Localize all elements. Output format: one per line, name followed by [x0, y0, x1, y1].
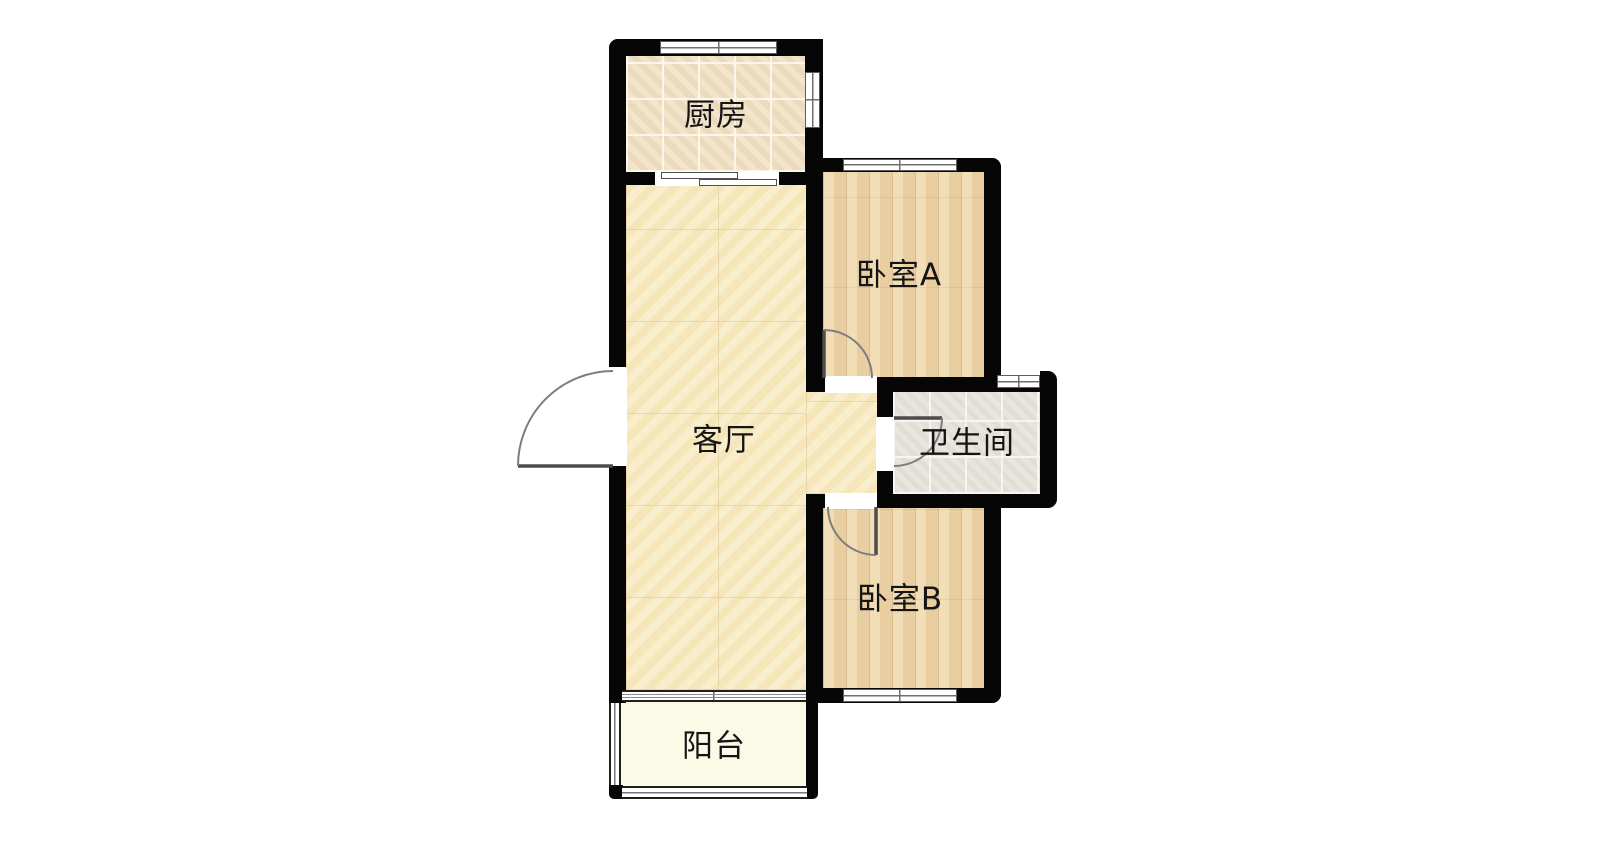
- room-label-bedroom-a: 卧室A: [856, 250, 942, 295]
- room-label-balcony: 阳台: [682, 721, 746, 766]
- entrance-door-arc: [518, 371, 613, 466]
- opening-bedroom-b-door: [825, 493, 877, 509]
- wall-living-bedroom-b: [806, 494, 823, 703]
- room-label-kitchen: 厨房: [684, 90, 748, 135]
- wall-bedroom-b-right: [984, 508, 1001, 703]
- room-label-bathroom: 卫生间: [919, 418, 1015, 463]
- wall-living-bedroom-a: [806, 158, 823, 392]
- floorplan-canvas: 厨房 卧室A 客厅 卫生间 卧室B 阳台: [0, 0, 1600, 842]
- wall-bathroom-right: [1040, 371, 1057, 508]
- window-bedroom-a: [843, 159, 957, 171]
- opening-bedroom-a-door: [825, 376, 877, 393]
- wall-bedroom-a-right: [984, 158, 1001, 392]
- window-balcony-bottom: [622, 786, 807, 799]
- window-bedroom-b: [843, 689, 957, 702]
- window-balcony-left: [609, 703, 621, 785]
- room-label-bedroom-b: 卧室B: [857, 574, 943, 619]
- wall-living-balcony-corner: [609, 688, 623, 703]
- room-label-living: 客厅: [692, 415, 756, 460]
- sliding-door-panel-right: [699, 179, 777, 186]
- window-balcony-glass-door: [622, 690, 806, 702]
- room-living-corridor-floor: [806, 392, 877, 494]
- opening-entrance: [608, 367, 627, 466]
- window-kitchen-right: [805, 72, 820, 128]
- wall-balcony-right: [806, 688, 818, 799]
- wall-balcony-corner-left: [609, 785, 623, 799]
- window-kitchen-top: [660, 41, 777, 54]
- wall-left-upper: [609, 39, 626, 367]
- sliding-door-panel-left: [661, 172, 738, 179]
- window-bathroom: [997, 375, 1040, 388]
- wall-left-lower: [609, 466, 626, 703]
- opening-bathroom-door: [876, 417, 894, 471]
